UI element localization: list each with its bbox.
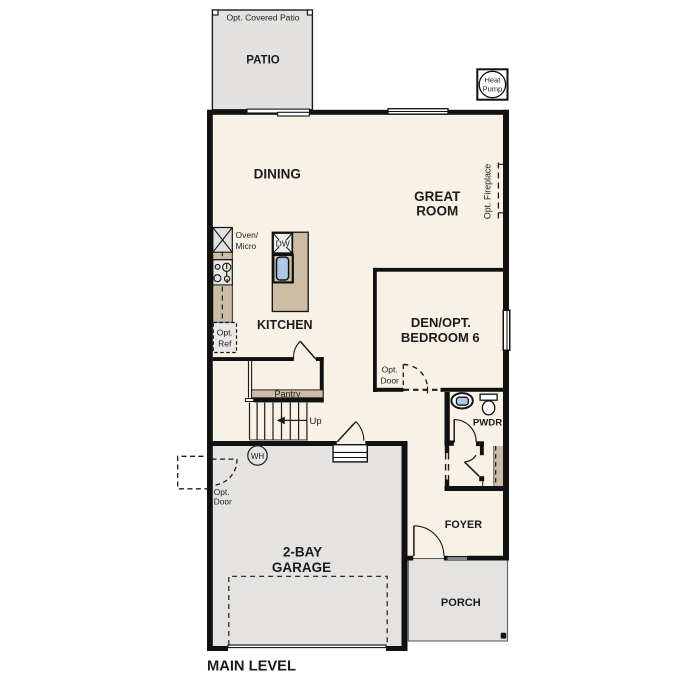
svg-text:KITCHEN: KITCHEN: [257, 318, 313, 332]
svg-text:MAIN LEVEL: MAIN LEVEL: [207, 658, 296, 674]
svg-text:BEDROOM 6: BEDROOM 6: [401, 330, 480, 345]
svg-text:DINING: DINING: [254, 167, 301, 182]
svg-text:GREAT: GREAT: [414, 189, 461, 204]
svg-text:Opt. Fireplace: Opt. Fireplace: [483, 164, 493, 219]
svg-text:Opt.: Opt.: [217, 328, 233, 338]
svg-text:ROOM: ROOM: [416, 204, 458, 219]
svg-text:WH: WH: [251, 452, 265, 461]
svg-text:Oven/: Oven/: [236, 230, 259, 240]
svg-text:Door: Door: [214, 496, 232, 506]
svg-text:Opt.: Opt.: [382, 365, 398, 375]
svg-text:Micro: Micro: [236, 241, 257, 251]
svg-text:Heat: Heat: [484, 75, 501, 84]
svg-text:DW: DW: [276, 239, 290, 249]
svg-text:2-BAY: 2-BAY: [283, 545, 322, 560]
svg-text:Door: Door: [380, 376, 399, 386]
svg-text:FOYER: FOYER: [445, 519, 482, 531]
svg-text:Opt. Covered Patio: Opt. Covered Patio: [226, 13, 299, 23]
svg-text:Ref: Ref: [218, 338, 232, 348]
svg-text:PWDR: PWDR: [473, 417, 502, 428]
svg-text:PATIO: PATIO: [246, 55, 279, 67]
svg-text:DEN/OPT.: DEN/OPT.: [411, 315, 471, 330]
svg-text:PORCH: PORCH: [441, 597, 481, 609]
svg-text:Opt.: Opt.: [214, 487, 230, 497]
svg-text:Up: Up: [310, 416, 322, 427]
svg-text:Pantry: Pantry: [274, 389, 301, 399]
svg-text:GARAGE: GARAGE: [272, 560, 331, 575]
svg-text:Pump: Pump: [483, 84, 503, 93]
